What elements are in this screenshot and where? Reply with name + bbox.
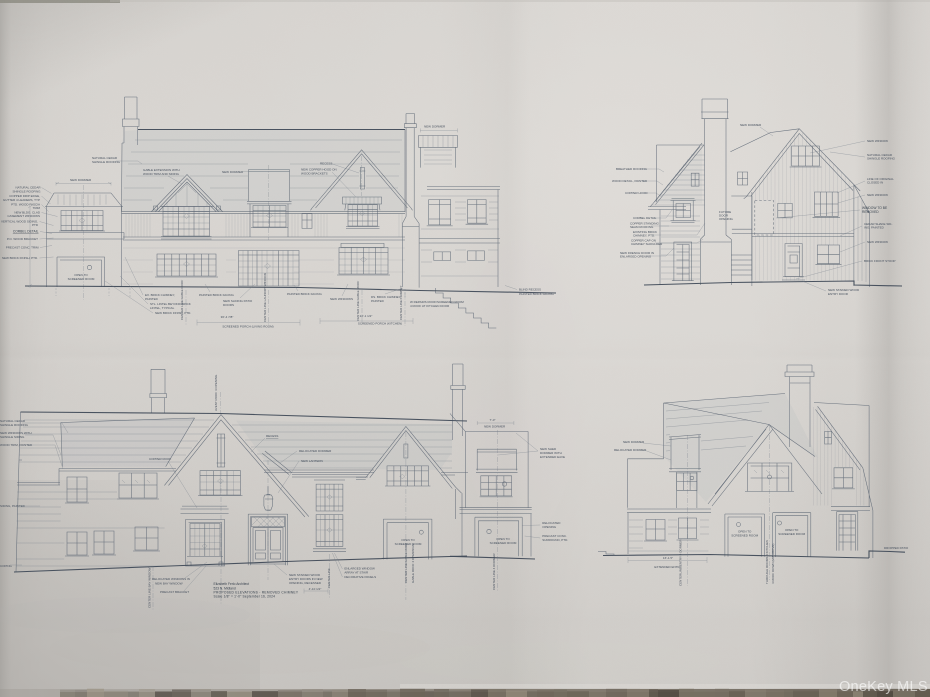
svg-text:COPPER ROOF: COPPER ROOF: [149, 457, 171, 461]
svg-text:THROUGH ROOMS 4 KITCHEN: THROUGH ROOMS 4 KITCHEN: [765, 540, 769, 584]
svg-text:RECESS: RECESS: [320, 162, 332, 166]
svg-text:BRICK FRONT STOOP: BRICK FRONT STOOP: [864, 259, 896, 263]
svg-text:NEW WINDOW: NEW WINDOW: [867, 193, 888, 197]
svg-text:REMOVED: REMOVED: [862, 210, 879, 214]
svg-text:NEW DORMER: NEW DORMER: [222, 170, 244, 174]
svg-text:COPING: COPING: [0, 564, 13, 568]
svg-text:CORBEL DETAIL: CORBEL DETAIL: [13, 230, 39, 234]
svg-text:OPENING: OPENING: [719, 217, 734, 221]
svg-text:CASEMENT WINDOWS: CASEMENT WINDOWS: [7, 214, 40, 218]
svg-text:NEW DORMER: NEW DORMER: [70, 178, 92, 182]
svg-text:TRIM: TRIM: [33, 206, 41, 210]
svg-text:OPENING, RECESSED: OPENING, RECESSED: [289, 581, 322, 585]
svg-text:SCREENED ROOM: SCREENED ROOM: [395, 542, 422, 546]
svg-text:SCREENED PORCH (LIVING ROOM): SCREENED PORCH (LIVING ROOM): [222, 325, 273, 329]
svg-text:NEW WINDOWS: NEW WINDOWS: [330, 297, 353, 301]
svg-text:PAINTED BRICK FACING: PAINTED BRICK FACING: [519, 292, 554, 296]
svg-text:CENTER LINE CHIMNEY: CENTER LINE CHIMNEY: [399, 285, 403, 320]
svg-text:SCREENED ROOM: SCREENED ROOM: [490, 541, 517, 545]
svg-text:P.O. WOOD BRACKET: P.O. WOOD BRACKET: [7, 237, 38, 241]
svg-text:SHINGLE ROOFING: SHINGLE ROOFING: [92, 160, 121, 164]
svg-text:CHIMNEY SHOULDER: CHIMNEY SHOULDER: [631, 242, 663, 246]
svg-text:CENTER LINE LAUNDRY WINDOW: CENTER LINE LAUNDRY WINDOW: [263, 273, 267, 322]
svg-text:SHINGLE ROOFING: SHINGLE ROOFING: [12, 190, 41, 194]
svg-text:7'-0": 7'-0": [490, 418, 496, 422]
svg-text:SEAM ROOFING: SEAM ROOFING: [630, 225, 654, 229]
svg-text:NEW LANTERN: NEW LANTERN: [301, 459, 323, 463]
svg-text:SCREENED ROOM: SCREENED ROOM: [731, 534, 758, 538]
svg-text:DOORS: DOORS: [223, 303, 234, 307]
svg-text:NEW BAY WINDOW: NEW BAY WINDOW: [155, 582, 183, 586]
svg-text:SHINGLE ROOFING: SHINGLE ROOFING: [0, 423, 29, 427]
svg-text:NEW WINDOW: NEW WINDOW: [867, 139, 888, 143]
svg-text:NEW DORMER: NEW DORMER: [740, 123, 762, 127]
svg-text:CHIMNEY, PTD.: CHIMNEY, PTD.: [633, 234, 655, 238]
svg-text:SHINGLE ROOFING: SHINGLE ROOFING: [867, 157, 896, 161]
svg-text:NEW DORMER: NEW DORMER: [424, 125, 446, 129]
svg-text:PRECAST CONC. TRIM: PRECAST CONC. TRIM: [6, 246, 39, 250]
svg-text:CENTER LINE GABLE ROOF: CENTER LINE GABLE ROOF: [180, 280, 184, 320]
svg-text:36'-4 7/8": 36'-4 7/8": [221, 315, 234, 319]
svg-text:4'-10 1/2": 4'-10 1/2": [309, 587, 322, 591]
svg-text:PAINTED BRICK FACING: PAINTED BRICK FACING: [287, 292, 322, 296]
svg-text:PAINTED: PAINTED: [145, 297, 159, 301]
svg-text:SURROUND, PTD.: SURROUND, PTD.: [542, 538, 568, 542]
svg-text:CENTERLINE ENTRY 4 DORMER: CENTERLINE ENTRY 4 DORMER: [679, 539, 683, 586]
svg-text:DECORATIVE PANELS: DECORATIVE PANELS: [344, 575, 376, 579]
svg-text:WOOD TRIM AND SIDING: WOOD TRIM AND SIDING: [143, 172, 180, 176]
svg-text:NEW DORMER: NEW DORMER: [623, 440, 645, 444]
svg-text:OneKey MLS: OneKey MLS: [839, 679, 928, 695]
svg-text:PRECAST BRACKET: PRECAST BRACKET: [160, 590, 189, 594]
svg-text:SCREENED PORCH (KITCHEN): SCREENED PORCH (KITCHEN): [358, 322, 402, 326]
svg-text:Scale 1/8" = 1'-0" September: Scale 1/8" = 1'-0" September 16, 2024: [214, 595, 276, 599]
svg-text:PAINTED: PAINTED: [371, 299, 385, 303]
svg-text:22'-1 1/2": 22'-1 1/2": [360, 314, 373, 318]
svg-text:SHINGLE SIDING: SHINGLE SIDING: [0, 435, 25, 439]
svg-text:PTD: PTD: [32, 223, 39, 227]
svg-text:4 ROOF DOWN (MIT ABOVE): 4 ROOF DOWN (MIT ABOVE): [771, 544, 775, 584]
svg-text:NEW WINDOW: NEW WINDOW: [867, 240, 888, 244]
svg-text:ENLARGED OPENING: ENLARGED OPENING: [620, 255, 652, 259]
svg-text:ENTRY DOOR: ENTRY DOOR: [828, 292, 849, 296]
svg-text:ING, PAINTED: ING, PAINTED: [864, 226, 885, 230]
svg-text:RELOCATED DORMER: RELOCATED DORMER: [299, 449, 332, 453]
svg-text:WOOD BRACKETS: WOOD BRACKETS: [301, 172, 328, 176]
svg-text:RELOCATED DORMER: RELOCATED DORMER: [614, 448, 647, 452]
svg-text:CLOSED IN: CLOSED IN: [867, 181, 883, 185]
svg-text:CENTER LINE 4 DORMER: CENTER LINE 4 DORMER: [492, 553, 496, 590]
svg-text:GABLE ROOF 4 OPENINGS: GABLE ROOF 4 OPENINGS: [411, 544, 415, 583]
svg-text:SCREENED ROOM: SCREENED ROOM: [68, 277, 95, 281]
svg-text:PAINTED BRICK FACING: PAINTED BRICK FACING: [199, 293, 234, 297]
svg-text:GUTTER 4 LEADERS, TYP: GUTTER 4 LEADERS, TYP: [3, 198, 40, 202]
svg-text:CENTER LINE GABLE ROOF: CENTER LINE GABLE ROOF: [404, 543, 408, 583]
svg-text:NEW DORMER: NEW DORMER: [484, 424, 506, 428]
svg-text:NEW BRICK FINISH, PTD.: NEW BRICK FINISH, PTD.: [2, 256, 38, 260]
svg-text:16'-1.5": 16'-1.5": [663, 556, 673, 560]
svg-text:LINTEL, TYPICAL: LINTEL, TYPICAL: [150, 306, 175, 310]
svg-text:4 ROOF AT KITCHEN DOOR: 4 ROOF AT KITCHEN DOOR: [410, 304, 450, 308]
svg-text:RECESS: RECESS: [266, 434, 278, 438]
svg-text:SCREENED ROOM: SCREENED ROOM: [778, 532, 805, 536]
svg-text:DROPPED PATIO: DROPPED PATIO: [884, 546, 909, 550]
svg-text:AVENT ROOF 4 OPENING: AVENT ROOF 4 OPENING: [214, 374, 218, 411]
svg-text:CENTER LINE: CENTER LINE: [327, 568, 331, 588]
svg-text:CENTER LINE BAY WINDOW: CENTER LINE BAY WINDOW: [148, 567, 152, 608]
svg-text:RELOCATED WINDOWS IN: RELOCATED WINDOWS IN: [152, 577, 190, 581]
svg-text:EXTENDED EAVE: EXTENDED EAVE: [540, 455, 565, 459]
svg-text:OPENING: OPENING: [542, 525, 557, 529]
svg-text:BLIND RECESS: BLIND RECESS: [519, 288, 541, 292]
